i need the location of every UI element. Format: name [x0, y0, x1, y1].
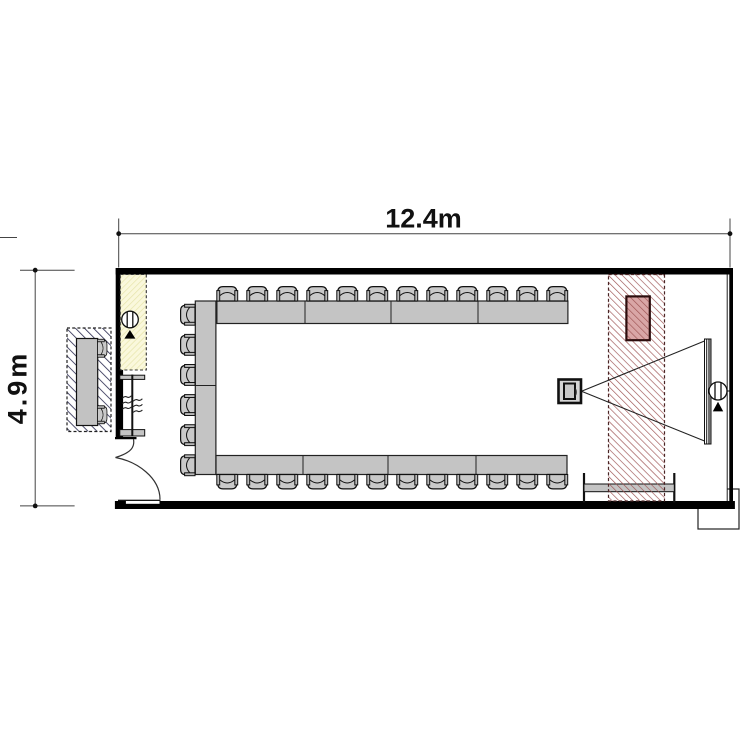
- svg-text:4.9m: 4.9m: [3, 351, 33, 425]
- svg-text:12.4m: 12.4m: [385, 204, 462, 234]
